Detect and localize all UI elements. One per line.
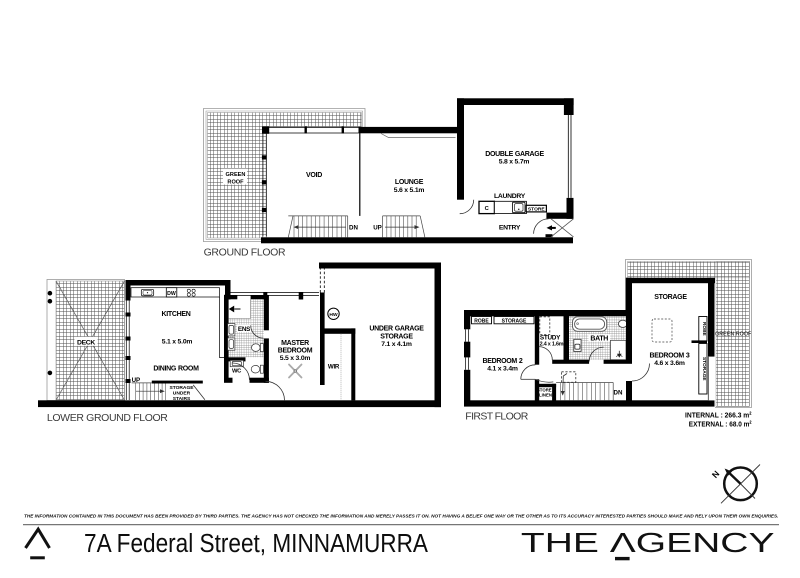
svg-text:UNDER GARAGE: UNDER GARAGE	[369, 326, 424, 333]
svg-text:BEDROOM 3: BEDROOM 3	[650, 353, 690, 360]
svg-text:BEDROOM 2: BEDROOM 2	[483, 358, 523, 365]
svg-text:KITCHEN: KITCHEN	[161, 311, 190, 318]
svg-text:LOUNGE: LOUNGE	[395, 179, 424, 186]
svg-text:STORAGE: STORAGE	[502, 318, 527, 324]
svg-text:5.1 x 5.0m: 5.1 x 5.0m	[162, 338, 193, 345]
svg-text:7.1 x 4.1m: 7.1 x 4.1m	[381, 341, 412, 348]
svg-text:BEDROOM: BEDROOM	[278, 348, 313, 355]
svg-text:LOWER GROUND FLOOR: LOWER GROUND FLOOR	[47, 412, 168, 424]
svg-text:MASTER: MASTER	[281, 340, 309, 347]
svg-text:DN: DN	[349, 225, 358, 232]
svg-text:ROBE: ROBE	[474, 318, 489, 324]
svg-text:LINEN: LINEN	[539, 393, 552, 398]
svg-text:BATH: BATH	[590, 335, 608, 342]
svg-text:STORAGE: STORAGE	[169, 385, 194, 391]
svg-text:STORAGE: STORAGE	[701, 357, 707, 381]
svg-text:VOID: VOID	[306, 172, 322, 179]
svg-text:UP: UP	[373, 225, 382, 232]
svg-text:DECK: DECK	[77, 339, 95, 346]
svg-text:ENS: ENS	[238, 326, 251, 333]
svg-text:STUDY: STUDY	[540, 335, 561, 342]
svg-text:WIR: WIR	[328, 363, 340, 370]
svg-text:ROBE: ROBE	[701, 322, 707, 337]
svg-text:THE INFORMATION CONTAINED IN T: THE INFORMATION CONTAINED IN THIS DOCUME…	[24, 513, 778, 518]
svg-text:UP: UP	[132, 377, 141, 384]
svg-text:STORAGE: STORAGE	[380, 333, 413, 340]
svg-text:7A Federal Street, MINNAMURRA: 7A Federal Street, MINNAMURRA	[84, 528, 428, 558]
svg-text:THE ΛGENCY: THE ΛGENCY	[521, 527, 775, 558]
svg-text:UNDER: UNDER	[173, 391, 191, 397]
svg-text:5.8 x 5.7m: 5.8 x 5.7m	[499, 158, 530, 165]
svg-text:4.6 x 3.6m: 4.6 x 3.6m	[654, 360, 685, 367]
svg-text:STORE: STORE	[528, 207, 545, 213]
svg-text:ENTRY: ENTRY	[499, 224, 521, 231]
svg-text:DW: DW	[167, 291, 176, 297]
svg-text:WC: WC	[232, 369, 242, 375]
svg-text:2.4 x 1.6m: 2.4 x 1.6m	[540, 342, 564, 348]
svg-text:GREEN: GREEN	[226, 172, 246, 178]
svg-text:5.5 x 3.0m: 5.5 x 3.0m	[280, 355, 311, 362]
svg-text:ROOF: ROOF	[227, 179, 244, 185]
svg-text:FIRST FLOOR: FIRST FLOOR	[465, 411, 528, 423]
svg-text:STAIRS: STAIRS	[173, 396, 191, 402]
svg-text:INTERNAL : 266.3 m²: INTERNAL : 266.3 m²	[685, 411, 752, 420]
svg-text:GREEN ROOF: GREEN ROOF	[715, 331, 752, 337]
svg-text:EXTERNAL : 68.0 m²: EXTERNAL : 68.0 m²	[689, 420, 752, 429]
svg-text:LAUNDRY: LAUNDRY	[494, 193, 526, 200]
svg-text:4.1 x 3.4m: 4.1 x 3.4m	[487, 365, 518, 372]
svg-text:5.6 x 5.1m: 5.6 x 5.1m	[394, 187, 425, 194]
svg-text:DN: DN	[614, 390, 623, 397]
svg-text:STORAGE: STORAGE	[654, 294, 687, 301]
svg-text:GROUND FLOOR: GROUND FLOOR	[204, 246, 286, 258]
svg-text:DINING ROOM: DINING ROOM	[153, 366, 199, 373]
svg-text:HW: HW	[329, 312, 338, 318]
svg-text:DOUBLE GARAGE: DOUBLE GARAGE	[485, 151, 544, 158]
